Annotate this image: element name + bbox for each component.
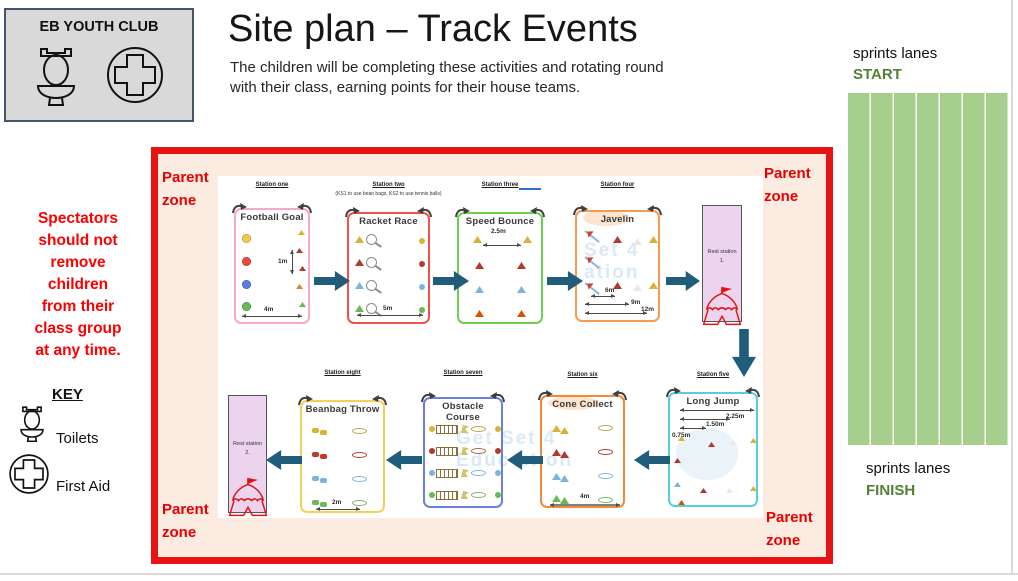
dimension-line bbox=[591, 296, 615, 297]
sprint-lanes-bottom-label: sprints lanes bbox=[866, 460, 950, 477]
hoop-icon bbox=[471, 426, 486, 432]
ball-icon bbox=[495, 492, 501, 498]
curved-arrow-icon bbox=[646, 203, 662, 215]
page-title: Site plan – Track Events bbox=[228, 8, 638, 51]
curved-arrow-icon bbox=[298, 393, 314, 405]
ladder-icon bbox=[436, 425, 458, 434]
flow-arrow-left-icon bbox=[634, 450, 670, 470]
hurdle-icon bbox=[461, 447, 469, 455]
spectator-notice: Spectators should not remove children fr… bbox=[4, 208, 152, 362]
hurdle-icon bbox=[461, 469, 469, 477]
window-edge-horizontal bbox=[0, 573, 1018, 575]
station-box-long-jump: Long Jump 2.25m 1.50m 0.75m bbox=[668, 392, 758, 507]
station-label-one: Station one bbox=[234, 182, 310, 188]
parent-zone-top-left: Parent zone bbox=[162, 166, 224, 213]
hoop-icon bbox=[471, 492, 486, 498]
ladder-icon bbox=[436, 491, 458, 500]
station-box-beanbag-throw: Beanbag Throw 2m bbox=[300, 400, 385, 513]
cone-icon bbox=[298, 230, 305, 235]
dimension-line bbox=[357, 315, 423, 316]
hurdle-icon bbox=[461, 425, 469, 433]
flow-arrow-right-icon bbox=[666, 271, 700, 291]
cone-icon bbox=[649, 236, 658, 243]
tent-icon bbox=[700, 284, 744, 328]
station-box-obstacle-course: Obstacle Course bbox=[423, 397, 503, 508]
cone-icon bbox=[678, 500, 685, 505]
club-icons bbox=[6, 44, 192, 106]
ball-icon bbox=[429, 426, 435, 432]
dimension-line bbox=[680, 419, 730, 420]
ball-icon bbox=[495, 470, 501, 476]
cone-icon bbox=[613, 236, 622, 243]
station-label-four: Station four bbox=[575, 182, 660, 188]
flow-arrow-left-icon bbox=[266, 450, 302, 470]
dimension-line bbox=[680, 428, 706, 429]
cone-icon bbox=[296, 248, 303, 253]
javelin-icon bbox=[584, 230, 599, 243]
dimension-line bbox=[585, 304, 629, 305]
cone-icon bbox=[750, 486, 757, 491]
curved-arrow-icon bbox=[421, 390, 437, 402]
ball-icon bbox=[429, 492, 435, 498]
parent-zone-bottom-left: Parent zone bbox=[162, 498, 224, 545]
cone-icon bbox=[475, 310, 484, 317]
flow-arrow-down-icon bbox=[732, 329, 756, 377]
beanbag-icon bbox=[320, 502, 327, 507]
rest-station-text: Rest station 1. bbox=[703, 248, 741, 267]
station-label-two: Station two bbox=[347, 182, 430, 188]
hurdle-icon bbox=[461, 491, 469, 499]
ball-icon bbox=[495, 426, 501, 432]
slide-canvas: EB YOUTH CLUB Site plan – Track Events T… bbox=[0, 0, 1018, 581]
beanbag-icon bbox=[312, 500, 319, 505]
sprint-lanes-start-label: START bbox=[853, 66, 902, 83]
dimension-line bbox=[316, 509, 360, 510]
cone-icon bbox=[552, 425, 561, 432]
curved-arrow-icon bbox=[611, 388, 627, 400]
hoop-icon bbox=[598, 473, 613, 479]
rest-station-2: Rest station 2. bbox=[228, 395, 267, 513]
cone-icon bbox=[523, 236, 532, 243]
dimension-line bbox=[483, 245, 521, 246]
ball-icon bbox=[419, 238, 425, 244]
dimension-label: 9m bbox=[631, 299, 640, 306]
javelin-icon bbox=[584, 256, 599, 269]
parent-zone-bottom-right: Parent zone bbox=[766, 506, 828, 553]
key-title: KEY bbox=[52, 386, 83, 403]
ball-icon bbox=[419, 284, 425, 290]
flow-arrow-left-icon bbox=[386, 450, 422, 470]
curved-arrow-icon bbox=[232, 201, 248, 213]
cone-icon bbox=[552, 473, 561, 480]
rest-station-text: Rest station 2. bbox=[229, 440, 266, 459]
javelin-icon bbox=[584, 282, 599, 295]
dimension-line bbox=[680, 410, 754, 411]
window-edge-vertical bbox=[1011, 0, 1013, 574]
dimension-line bbox=[242, 316, 302, 317]
ball-icon bbox=[242, 257, 251, 266]
ball-icon bbox=[429, 470, 435, 476]
club-title: EB YOUTH CLUB bbox=[6, 19, 192, 35]
cone-icon bbox=[355, 259, 364, 266]
cone-icon bbox=[708, 442, 715, 447]
curved-arrow-icon bbox=[538, 388, 554, 400]
station-two-note: (KS1 to use bean bags, KS2 to use tennis… bbox=[320, 191, 457, 197]
curved-arrow-icon bbox=[529, 205, 545, 217]
rest-station-1: Rest station 1. bbox=[702, 205, 742, 322]
sprint-lanes-top-label: sprints lanes bbox=[853, 45, 937, 62]
cone-icon bbox=[560, 497, 569, 504]
club-box: EB YOUTH CLUB bbox=[4, 8, 194, 122]
station-label-seven: Station seven bbox=[423, 370, 503, 376]
parent-zone-top-right: Parent zone bbox=[764, 162, 826, 209]
sprint-lanes-finish-label: FINISH bbox=[866, 482, 915, 499]
cone-icon bbox=[355, 236, 364, 243]
beanbag-icon bbox=[320, 430, 327, 435]
hoop-icon bbox=[598, 449, 613, 455]
hoop-icon bbox=[352, 428, 367, 434]
key-label-first-aid: First Aid bbox=[56, 478, 110, 495]
dimension-label: 0.75m bbox=[672, 432, 690, 439]
cone-icon bbox=[552, 449, 561, 456]
hoop-icon bbox=[598, 497, 613, 503]
toilet-icon bbox=[18, 404, 46, 442]
cone-icon bbox=[517, 286, 526, 293]
ball-icon bbox=[242, 280, 251, 289]
curved-arrow-icon bbox=[573, 203, 589, 215]
hoop-icon bbox=[352, 452, 367, 458]
cone-icon bbox=[299, 302, 306, 307]
cone-icon bbox=[726, 488, 733, 493]
station-label-six: Station six bbox=[540, 372, 625, 378]
cone-icon bbox=[730, 440, 737, 445]
hyperlink-underline bbox=[519, 188, 541, 190]
dimension-label: 1.50m bbox=[706, 421, 724, 428]
cone-icon bbox=[473, 236, 482, 243]
cone-icon bbox=[299, 266, 306, 271]
cone-icon bbox=[700, 488, 707, 493]
curved-arrow-icon bbox=[744, 385, 760, 397]
dimension-label: 4m bbox=[580, 493, 589, 500]
beanbag-icon bbox=[312, 476, 319, 481]
beanbag-icon bbox=[320, 454, 327, 459]
ball-icon bbox=[429, 448, 435, 454]
flow-arrow-right-icon bbox=[314, 271, 350, 291]
dimension-label: 1m bbox=[278, 258, 287, 265]
cone-icon bbox=[355, 282, 364, 289]
ball-icon bbox=[495, 448, 501, 454]
cone-icon bbox=[475, 262, 484, 269]
curved-arrow-icon bbox=[455, 205, 471, 217]
racket-icon bbox=[366, 234, 377, 245]
toilet-icon bbox=[33, 44, 79, 106]
cone-icon bbox=[560, 475, 569, 482]
station-label-eight: Station eight bbox=[300, 370, 385, 376]
tent-icon bbox=[226, 475, 270, 519]
page-subtitle: The children will be completing these ac… bbox=[230, 58, 710, 99]
curved-arrow-icon bbox=[489, 390, 505, 402]
racket-icon bbox=[366, 303, 377, 314]
cone-icon bbox=[560, 427, 569, 434]
curved-arrow-icon bbox=[416, 205, 432, 217]
cone-icon bbox=[517, 262, 526, 269]
dimension-line bbox=[585, 313, 647, 314]
cone-icon bbox=[633, 284, 642, 291]
cone-icon bbox=[475, 286, 484, 293]
station-title: Obstacle Course bbox=[425, 401, 501, 423]
dimension-label: 5m bbox=[383, 305, 392, 312]
beanbag-icon bbox=[312, 428, 319, 433]
racket-icon bbox=[366, 280, 377, 291]
station-box-racket-race: Racket Race 5m bbox=[347, 212, 430, 324]
hoop-icon bbox=[352, 500, 367, 506]
cone-icon bbox=[674, 482, 681, 487]
first-aid-icon bbox=[8, 453, 50, 495]
station-box-javelin: Javelin 6m 9m 12m bbox=[575, 210, 660, 322]
ball-icon bbox=[242, 234, 251, 243]
plan-area: Set 4 ation Get Set 4 Educ ation Station… bbox=[218, 176, 763, 518]
cone-icon bbox=[552, 495, 561, 502]
beanbag-icon bbox=[312, 452, 319, 457]
cone-icon bbox=[355, 305, 364, 312]
first-aid-icon bbox=[105, 45, 165, 105]
beanbag-icon bbox=[320, 478, 327, 483]
hoop-icon bbox=[471, 470, 486, 476]
ball-icon bbox=[419, 261, 425, 267]
station-box-football-goal: Football Goal 1m 4m bbox=[234, 208, 310, 324]
cone-icon bbox=[750, 438, 757, 443]
hoop-icon bbox=[598, 425, 613, 431]
curved-arrow-icon bbox=[296, 201, 312, 213]
sprint-lanes bbox=[848, 93, 1009, 445]
dimension-line bbox=[550, 504, 620, 506]
dimension-label: 2.5m bbox=[491, 228, 506, 235]
ladder-icon bbox=[436, 447, 458, 456]
dimension-line bbox=[292, 250, 293, 274]
key-label-toilets: Toilets bbox=[56, 430, 99, 447]
cone-icon bbox=[296, 284, 303, 289]
curved-arrow-icon bbox=[371, 393, 387, 405]
hoop-icon bbox=[352, 476, 367, 482]
dimension-label: 2m bbox=[332, 499, 341, 506]
cone-icon bbox=[674, 458, 681, 463]
cone-icon bbox=[560, 451, 569, 458]
racket-icon bbox=[366, 257, 377, 268]
station-box-speed-bounce: Speed Bounce 2.5m bbox=[457, 212, 543, 324]
site-plan-box: Parent zone Parent zone Parent zone Pare… bbox=[151, 147, 833, 564]
dimension-label: 4m bbox=[264, 306, 273, 313]
hoop-icon bbox=[471, 448, 486, 454]
curved-arrow-icon bbox=[345, 205, 361, 217]
ladder-icon bbox=[436, 469, 458, 478]
station-box-cone-collect: Cone Collect 4m bbox=[540, 395, 625, 508]
ball-icon bbox=[242, 302, 251, 311]
curved-arrow-icon bbox=[666, 385, 682, 397]
cone-icon bbox=[649, 282, 658, 289]
cone-icon bbox=[517, 310, 526, 317]
dimension-label: 6m bbox=[605, 287, 614, 294]
cone-icon bbox=[633, 238, 642, 245]
